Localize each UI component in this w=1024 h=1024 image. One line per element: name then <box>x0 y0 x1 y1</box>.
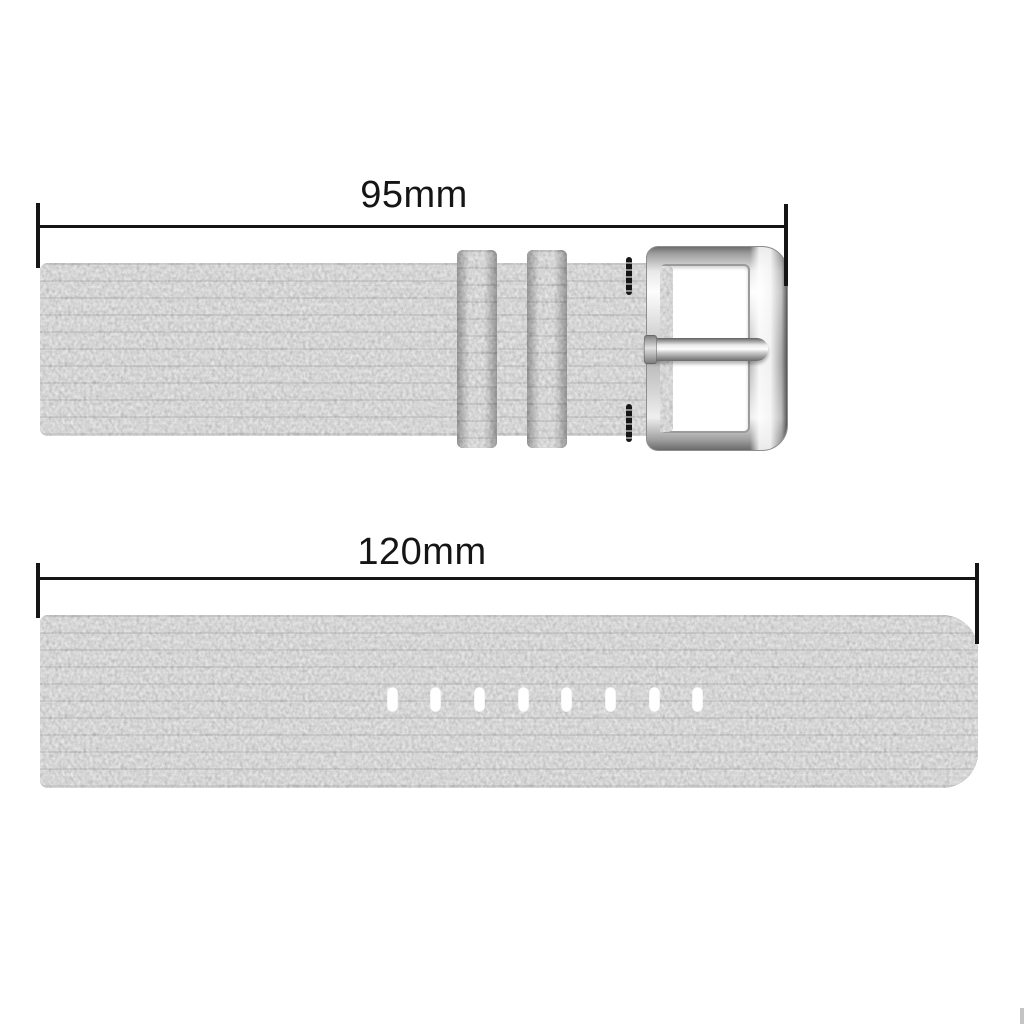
bottom-dimension-label: 120mm <box>357 533 486 571</box>
bottom-dimension-line <box>38 577 978 580</box>
stitch-line-bottom <box>626 404 632 442</box>
strap-hole <box>692 687 703 712</box>
keeper-loop-1 <box>457 250 497 448</box>
strap-hole <box>430 687 441 712</box>
strap-hole <box>518 687 529 712</box>
strap-hole <box>561 687 572 712</box>
buckle-prong-pivot <box>644 335 657 364</box>
top-dimension-tick-left <box>36 203 40 268</box>
buckle-prong <box>644 338 768 361</box>
top-dimension-line <box>37 225 787 228</box>
product-dimension-diagram: 95mm 120mm <box>0 0 1024 1024</box>
strap-hole <box>649 687 660 712</box>
top-strap-fabric <box>40 263 660 436</box>
strap-hole <box>387 687 398 712</box>
strap-hole <box>474 687 485 712</box>
strap-hole <box>605 687 616 712</box>
top-dimension-label: 95mm <box>360 176 468 214</box>
bottom-strap-fabric <box>40 615 978 788</box>
top-dimension-tick-right <box>784 204 788 286</box>
edge-artifact-mark <box>1020 1008 1024 1024</box>
bottom-dimension-tick-left <box>36 563 40 618</box>
keeper-loop-2 <box>527 250 567 448</box>
stitch-line-top <box>626 257 632 295</box>
bottom-dimension-tick-right <box>975 563 979 644</box>
holes-row <box>40 615 978 788</box>
